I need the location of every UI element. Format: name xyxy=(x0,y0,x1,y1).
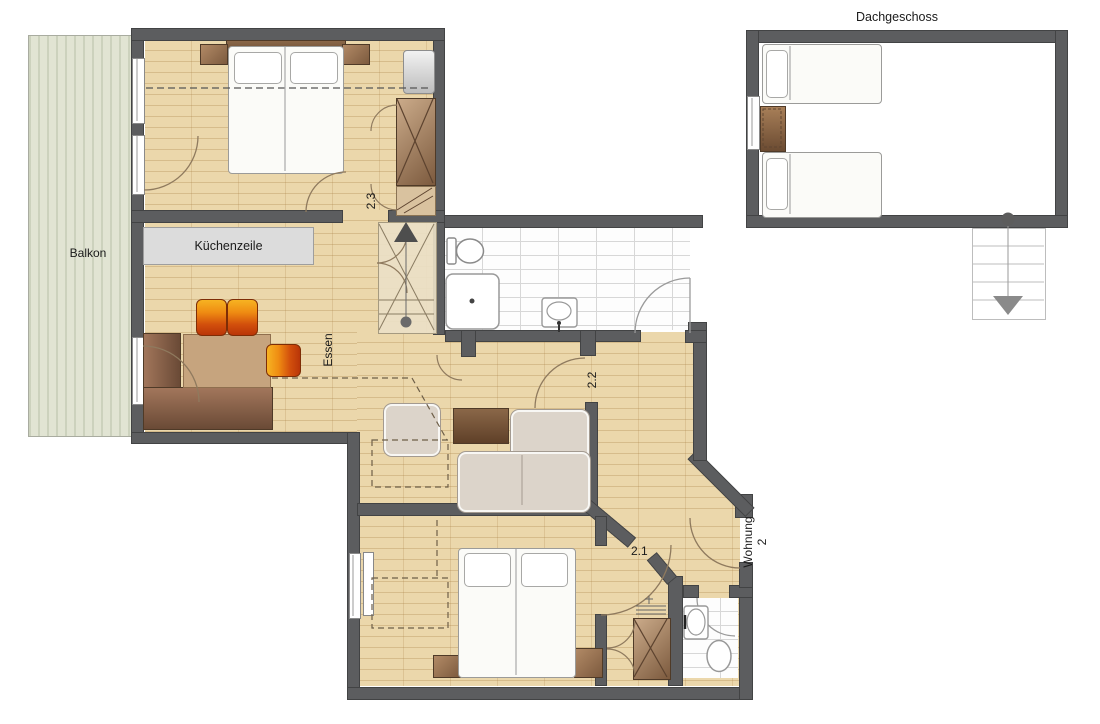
bathroom-main-floor xyxy=(445,228,690,330)
wall-stub xyxy=(580,330,596,356)
attic-wall xyxy=(746,30,1068,43)
pillow xyxy=(766,50,788,98)
entry-label: Wohnung 2 xyxy=(742,516,770,567)
room-number-2-3: 2.3 xyxy=(365,193,379,210)
window xyxy=(349,553,361,619)
pillow xyxy=(234,52,282,84)
pillow xyxy=(766,158,788,210)
room-number-2-1: 2.1 xyxy=(631,545,648,559)
wall xyxy=(347,687,753,700)
nightstand xyxy=(342,44,370,65)
stool xyxy=(196,299,227,336)
wall xyxy=(685,330,707,343)
corner-bench xyxy=(143,387,273,430)
attic-title: Dachgeschoss xyxy=(827,10,967,24)
balcony-label: Balkon xyxy=(48,247,128,261)
wall xyxy=(131,210,343,223)
bed-foot-block xyxy=(433,655,461,678)
attic-window xyxy=(747,96,760,150)
bathroom-small-floor xyxy=(683,598,738,678)
kitchen-counter: Küchenzeile xyxy=(143,227,314,265)
shelf xyxy=(396,186,436,216)
dining-table xyxy=(183,334,271,388)
stool xyxy=(266,344,301,377)
pillow xyxy=(290,52,338,84)
floor-plan: Küchenzeile xyxy=(0,0,1100,724)
outside-mask-top xyxy=(705,430,760,456)
attic-dresser xyxy=(760,106,786,152)
wall xyxy=(131,432,357,444)
room-number-2-2: 2.2 xyxy=(586,372,600,389)
stool xyxy=(227,299,258,336)
wardrobe xyxy=(633,618,671,680)
wardrobe xyxy=(396,98,436,186)
sofa-seat xyxy=(458,452,590,512)
bed-foot-block xyxy=(574,648,603,678)
attic-wall xyxy=(1055,30,1068,228)
radiator xyxy=(363,552,374,616)
wall xyxy=(683,585,699,598)
staircase-main xyxy=(378,222,437,334)
coffee-table xyxy=(453,408,509,444)
balcony-floor xyxy=(28,35,137,437)
entry-label-line2: 2 xyxy=(756,516,770,567)
armchair xyxy=(384,404,440,456)
balcony-door-opening xyxy=(132,135,145,195)
dresser xyxy=(403,50,435,94)
dining-label: Essen xyxy=(322,333,336,366)
staircase-attic xyxy=(972,228,1046,320)
pillow xyxy=(464,553,511,587)
wall xyxy=(595,516,607,546)
kitchen-counter-label: Küchenzeile xyxy=(194,239,262,253)
window xyxy=(132,58,145,124)
pillow xyxy=(521,553,568,587)
wall xyxy=(433,215,703,228)
wall-stub xyxy=(461,330,476,357)
entry-label-line1: Wohnung xyxy=(742,516,756,567)
wall xyxy=(693,337,707,461)
nightstand xyxy=(200,44,228,65)
